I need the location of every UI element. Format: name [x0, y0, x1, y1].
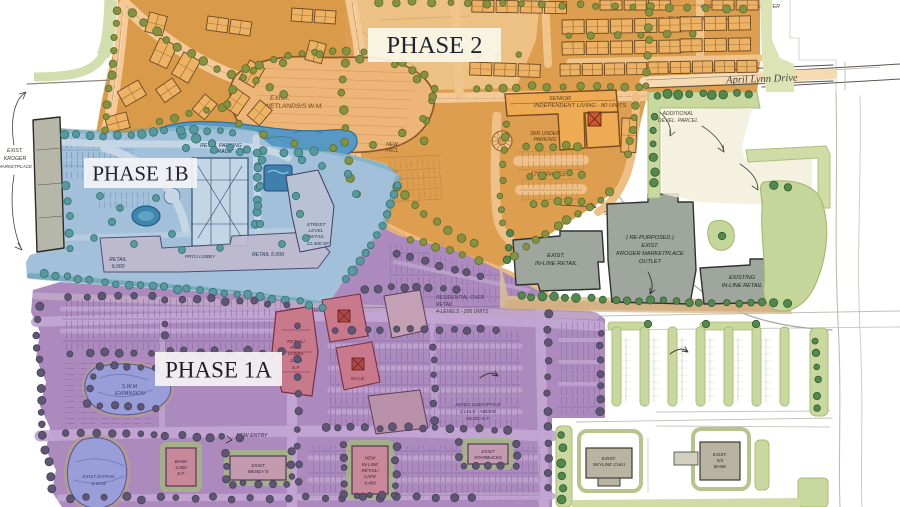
svg-text:RETAIL: RETAIL — [436, 302, 453, 308]
svg-text:PRCL: PRCL — [385, 148, 399, 154]
svg-text:RETAIL 5,000: RETAIL 5,000 — [252, 252, 284, 258]
svg-text:STREET: STREET — [307, 222, 327, 228]
svg-text:S.W.M.: S.W.M. — [122, 384, 139, 390]
svg-text:OUTLET: OUTLET — [639, 259, 662, 265]
svg-text:INDEPENDENT LIVING - 80 UNITS: INDEPENDENT LIVING - 80 UNITS — [534, 103, 627, 109]
svg-text:PROJ LOBBY: PROJ LOBBY — [185, 254, 216, 260]
svg-text:KROGER: KROGER — [4, 156, 27, 162]
svg-text:( RE-PURPOSED ): ( RE-PURPOSED ) — [626, 235, 674, 241]
svg-text:CAFE: CAFE — [364, 474, 377, 479]
svg-text:PHASE 1B: PHASE 1B — [92, 162, 188, 186]
svg-text:RETAIL/: RETAIL/ — [361, 468, 379, 473]
svg-text:EXIST./EXPAN.: EXIST./EXPAN. — [82, 474, 115, 480]
svg-text:5/3: 5/3 — [717, 458, 724, 463]
svg-text:IN-LINE RETAIL: IN-LINE RETAIL — [722, 283, 763, 289]
svg-text:EXIST.: EXIST. — [7, 148, 23, 154]
svg-text:S.F.: S.F. — [292, 365, 301, 371]
svg-text:9,400: 9,400 — [364, 480, 376, 485]
svg-text:48,000 S.F.: 48,000 S.F. — [466, 416, 491, 422]
svg-text:EXPANSION: EXPANSION — [115, 391, 145, 397]
svg-text:9,000: 9,000 — [112, 264, 125, 270]
svg-text:PARKING: PARKING — [534, 137, 557, 143]
svg-text:4-LEVELS - 205 UNITS: 4-LEVELS - 205 UNITS — [436, 309, 489, 315]
svg-text:RETAIL: RETAIL — [308, 234, 325, 240]
svg-text:RESIDENTIAL OVER: RESIDENTIAL OVER — [436, 295, 485, 301]
svg-text:WENDY'S: WENDY'S — [247, 469, 269, 474]
svg-text:IN-LINE: IN-LINE — [362, 462, 379, 467]
svg-text:MIXED USE/OFFICE: MIXED USE/OFFICE — [455, 402, 501, 408]
svg-text:M.O.B.: M.O.B. — [351, 376, 365, 381]
svg-text:RETAIL: RETAIL — [109, 257, 127, 263]
svg-text:EXIST.: EXIST. — [641, 243, 658, 249]
svg-text:22,400 SF: 22,400 SF — [306, 241, 330, 247]
svg-text:EXIST.: EXIST. — [547, 253, 565, 259]
svg-text:EXISTING: EXISTING — [729, 275, 756, 281]
svg-text:BANK: BANK — [175, 459, 188, 464]
svg-text:EXIST: EXIST — [481, 449, 495, 454]
svg-text:EXIST.: EXIST. — [602, 456, 616, 461]
svg-text:EXIST.: EXIST. — [713, 452, 727, 457]
svg-text:IN-LINE RETAIL: IN-LINE RETAIL — [535, 261, 577, 267]
svg-text:EXIST: EXIST — [251, 463, 265, 468]
svg-text:S.W.M.: S.W.M. — [91, 481, 107, 487]
svg-text:S.F.: S.F. — [177, 471, 185, 476]
svg-text:LEVEL: LEVEL — [309, 228, 324, 234]
svg-text:SKYLINE CHILI: SKYLINE CHILI — [593, 462, 626, 467]
svg-text:NEW: NEW — [365, 456, 376, 461]
svg-text:PHASE 1A: PHASE 1A — [165, 358, 272, 383]
svg-text:DEVEL. PARCEL: DEVEL. PARCEL — [658, 118, 698, 124]
svg-text:ADDITIONAL: ADDITIONAL — [661, 111, 693, 117]
svg-text:PHASE 2: PHASE 2 — [387, 32, 483, 59]
svg-text:STARBUCKS: STARBUCKS — [474, 455, 503, 460]
svg-text:2 LVLS - ABOVE: 2 LVLS - ABOVE — [459, 409, 497, 415]
svg-text:3,500: 3,500 — [175, 465, 187, 470]
svg-text:BANK: BANK — [714, 464, 727, 469]
svg-text:SENIOR: SENIOR — [549, 96, 572, 102]
svg-text:MARKETPLACE: MARKETPLACE — [0, 164, 33, 169]
svg-text:WETLANDS/S.W.M.: WETLANDS/S.W.M. — [264, 103, 323, 110]
svg-text:KROGER MARKETPLACE: KROGER MARKETPLACE — [616, 251, 684, 257]
